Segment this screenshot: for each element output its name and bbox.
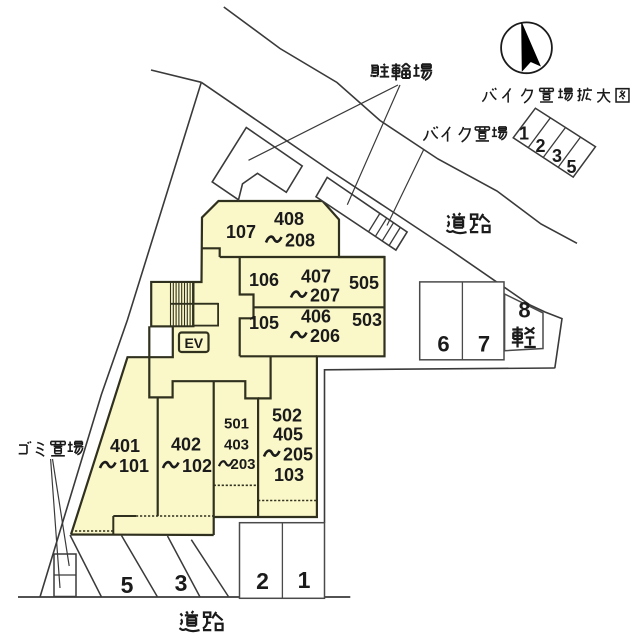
svg-text:203: 203	[230, 456, 255, 473]
svg-text:102: 102	[182, 456, 212, 476]
svg-text:408: 408	[274, 209, 304, 229]
svg-text:501: 501	[224, 416, 249, 433]
svg-text:7: 7	[478, 332, 490, 357]
svg-text:403: 403	[224, 437, 249, 454]
svg-text:207: 207	[310, 286, 340, 306]
svg-text:505: 505	[349, 273, 379, 293]
svg-text:405: 405	[273, 425, 303, 445]
svg-text:407: 407	[301, 267, 331, 287]
svg-text:101: 101	[119, 456, 149, 476]
svg-text:5: 5	[566, 157, 576, 177]
svg-text:3: 3	[552, 146, 562, 166]
svg-text:206: 206	[310, 326, 340, 346]
svg-text:5: 5	[121, 572, 134, 598]
svg-text:105: 105	[249, 313, 279, 333]
svg-text:107: 107	[226, 222, 256, 242]
svg-text:2: 2	[535, 136, 545, 156]
svg-text:103: 103	[274, 465, 304, 485]
svg-text:1: 1	[298, 567, 311, 593]
svg-text:3: 3	[175, 570, 188, 596]
svg-text:503: 503	[352, 310, 382, 330]
svg-text:406: 406	[301, 307, 331, 327]
svg-text:106: 106	[249, 270, 279, 290]
svg-text:502: 502	[272, 406, 302, 426]
svg-text:208: 208	[285, 231, 315, 251]
svg-text:EV: EV	[184, 335, 203, 351]
svg-text:2: 2	[256, 568, 269, 594]
svg-text:8: 8	[518, 298, 530, 323]
svg-text:6: 6	[437, 332, 449, 357]
svg-text:401: 401	[110, 436, 140, 456]
svg-text:205: 205	[283, 445, 313, 465]
svg-text:1: 1	[519, 124, 529, 144]
svg-text:402: 402	[171, 435, 201, 455]
